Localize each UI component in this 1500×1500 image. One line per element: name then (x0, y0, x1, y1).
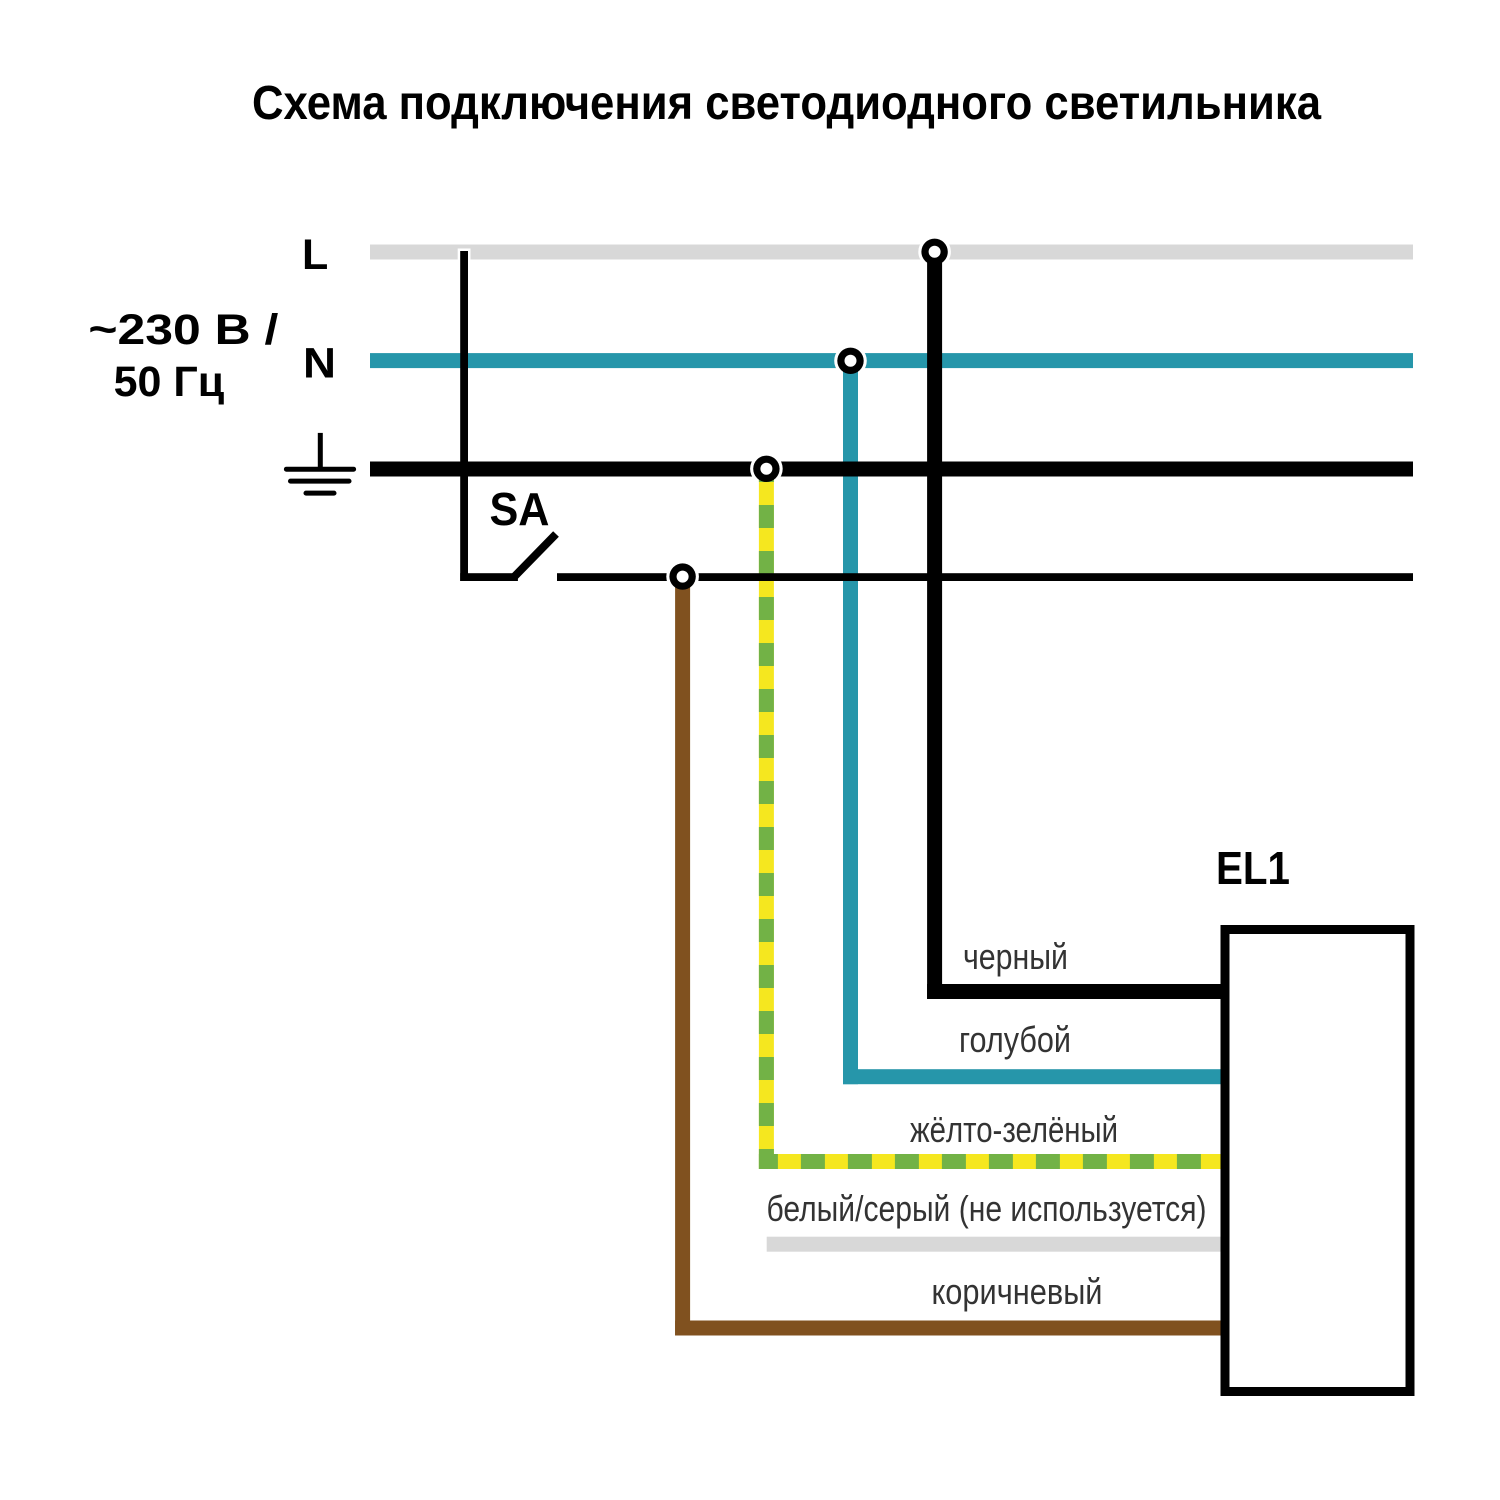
svg-text:белый/серый (не используется): белый/серый (не используется) (767, 1188, 1207, 1229)
svg-text:L: L (302, 231, 328, 279)
svg-text:SA: SA (490, 483, 550, 535)
svg-text:жёлто-зелёный: жёлто-зелёный (910, 1109, 1118, 1150)
svg-text:Схема подключения светодиодног: Схема подключения светодиодного светильн… (252, 77, 1321, 130)
svg-text:50 Гц: 50 Гц (114, 358, 225, 406)
svg-text:черный: черный (963, 936, 1068, 977)
svg-text:~230 В /: ~230 В / (88, 306, 278, 354)
svg-text:N: N (303, 340, 336, 388)
svg-text:голубой: голубой (959, 1019, 1071, 1060)
svg-text:EL1: EL1 (1216, 842, 1290, 894)
svg-text:коричневый: коричневый (932, 1271, 1103, 1312)
